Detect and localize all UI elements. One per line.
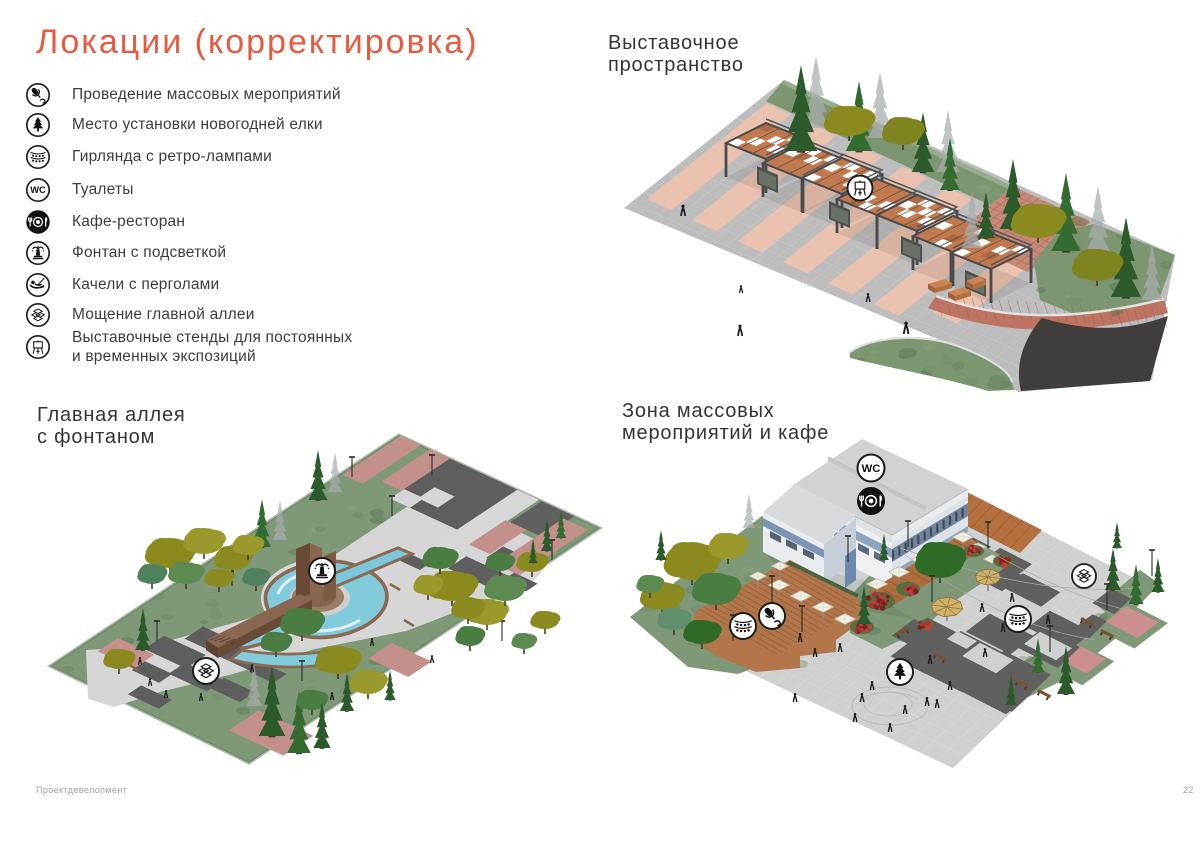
svg-text:WC: WC: [30, 185, 46, 195]
svg-text:WC: WC: [862, 463, 881, 475]
